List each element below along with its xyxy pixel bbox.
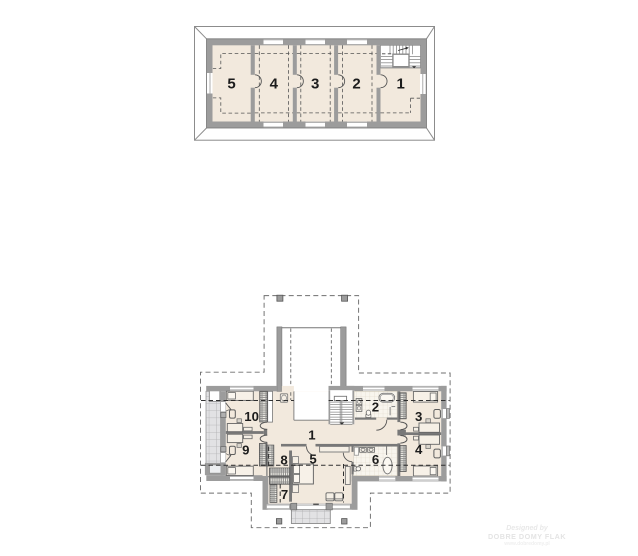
svg-text:3: 3 (415, 409, 422, 424)
svg-text:5: 5 (309, 451, 316, 466)
svg-text:10: 10 (244, 409, 259, 424)
svg-text:2: 2 (352, 76, 360, 93)
svg-text:1: 1 (308, 427, 315, 442)
svg-text:www.dobredomy.pl: www.dobredomy.pl (503, 541, 550, 547)
svg-text:6: 6 (372, 452, 379, 467)
svg-text:DOBRE DOMY FLAK: DOBRE DOMY FLAK (488, 532, 566, 541)
svg-text:8: 8 (280, 452, 287, 467)
svg-text:1: 1 (397, 76, 405, 93)
svg-text:4: 4 (270, 76, 279, 93)
svg-text:Designed by: Designed by (506, 525, 549, 532)
svg-text:9: 9 (242, 443, 249, 458)
svg-text:4: 4 (415, 442, 423, 457)
svg-text:3: 3 (311, 76, 319, 93)
svg-text:5: 5 (227, 76, 235, 93)
svg-text:2: 2 (372, 399, 379, 414)
svg-text:7: 7 (281, 487, 288, 502)
